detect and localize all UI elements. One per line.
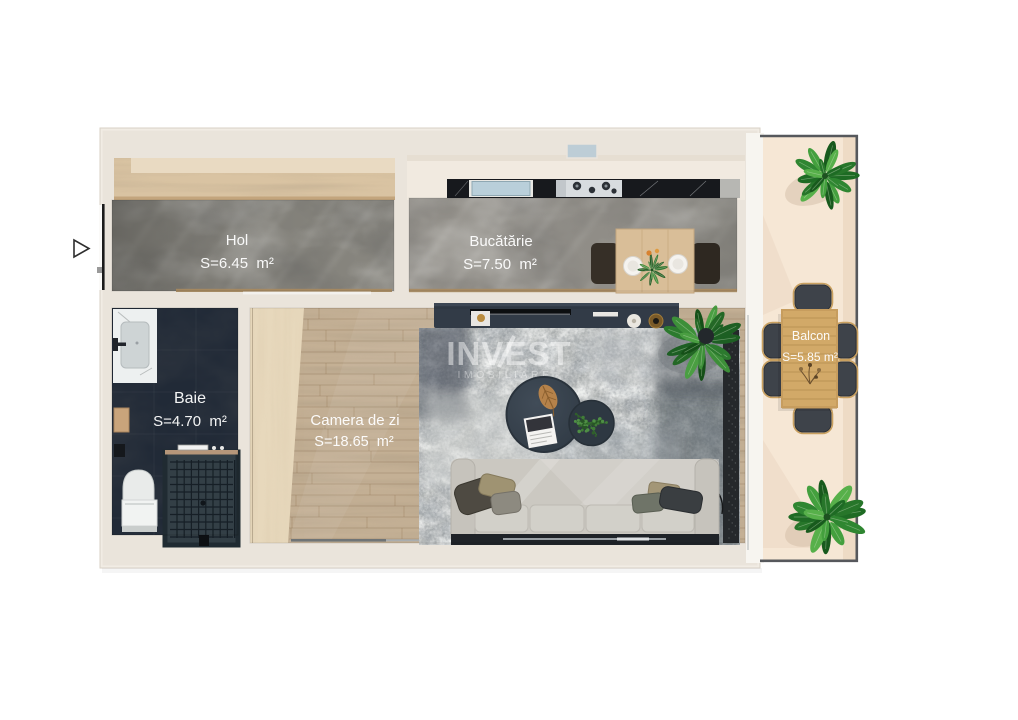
svg-text:Baie: Baie [174, 390, 206, 407]
svg-text:Hol: Hol [226, 232, 249, 249]
svg-text:Balcon: Balcon [792, 329, 830, 343]
svg-text:Camera de zi: Camera de zi [310, 412, 399, 429]
svg-text:Bucătărie: Bucătărie [469, 233, 532, 250]
svg-text:S=5.85 m²: S=5.85 m² [782, 350, 838, 364]
svg-text:S=6.45 m²: S=6.45 m² [200, 255, 274, 272]
svg-text:S=7.50 m²: S=7.50 m² [463, 256, 537, 273]
svg-text:INVEST: INVEST [446, 335, 571, 372]
svg-text:S=18.65 m²: S=18.65 m² [314, 434, 394, 450]
svg-text:S=4.70 m²: S=4.70 m² [153, 413, 227, 430]
